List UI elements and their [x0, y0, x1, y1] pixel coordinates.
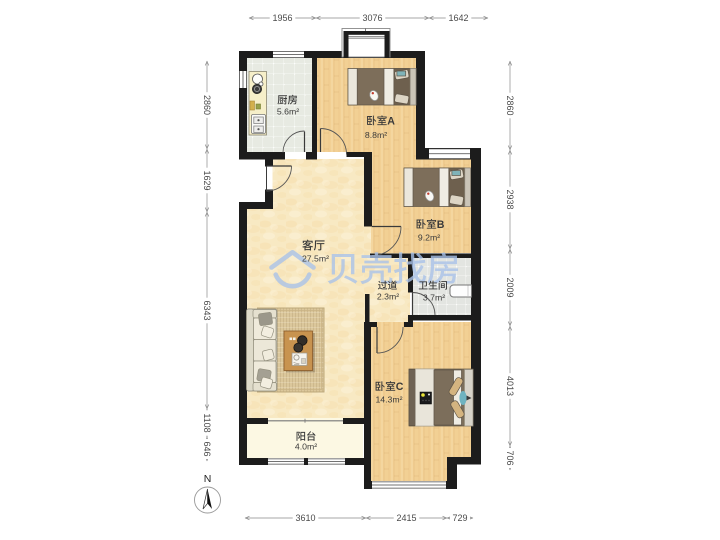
svg-text:2.3m²: 2.3m²: [377, 292, 399, 302]
svg-text:14.3m²: 14.3m²: [375, 395, 402, 405]
svg-text:3076: 3076: [362, 13, 382, 23]
svg-text:N: N: [204, 473, 212, 485]
svg-text:2860: 2860: [505, 95, 515, 115]
svg-text:4013: 4013: [505, 376, 515, 396]
svg-text:1642: 1642: [448, 13, 468, 23]
svg-text:706: 706: [505, 450, 515, 465]
svg-text:8.8m²: 8.8m²: [365, 130, 387, 140]
svg-text:2938: 2938: [505, 189, 515, 209]
svg-text:B: B: [437, 219, 445, 231]
svg-text:5.6m²: 5.6m²: [277, 107, 299, 117]
svg-text:729: 729: [452, 513, 467, 523]
svg-text:4.0m²: 4.0m²: [295, 442, 317, 452]
svg-text:9.2m²: 9.2m²: [418, 233, 440, 243]
svg-text:1956: 1956: [272, 13, 292, 23]
svg-text:A: A: [387, 116, 395, 128]
svg-text:2009: 2009: [505, 277, 515, 297]
svg-text:C: C: [396, 381, 404, 393]
svg-text:2415: 2415: [396, 513, 416, 523]
svg-text:1629: 1629: [202, 170, 212, 190]
svg-text:2860: 2860: [202, 95, 212, 115]
svg-text:1108: 1108: [202, 413, 212, 432]
svg-text:27.5m²: 27.5m²: [302, 254, 329, 264]
svg-text:6343: 6343: [202, 300, 212, 320]
svg-text:646: 646: [202, 441, 212, 456]
svg-text:3610: 3610: [295, 513, 315, 523]
svg-text:3.7m²: 3.7m²: [423, 293, 445, 303]
